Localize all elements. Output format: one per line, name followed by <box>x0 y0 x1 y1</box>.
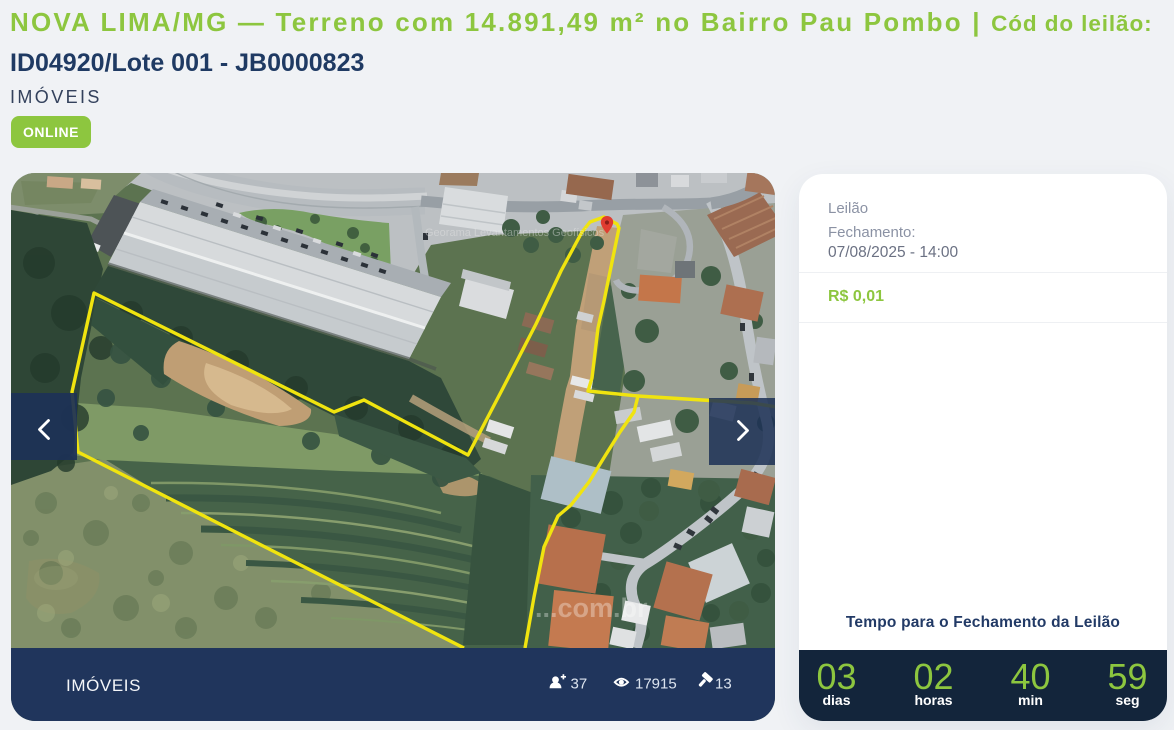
svg-text:17915: 17915 <box>635 676 677 693</box>
svg-text:37: 37 <box>571 676 588 693</box>
svg-text:Georama Levantamentos Geofísic: Georama Levantamentos Geofísicos <box>425 227 605 239</box>
svg-text:...com.br: ...com.br <box>535 593 648 623</box>
svg-text:13: 13 <box>715 676 732 693</box>
